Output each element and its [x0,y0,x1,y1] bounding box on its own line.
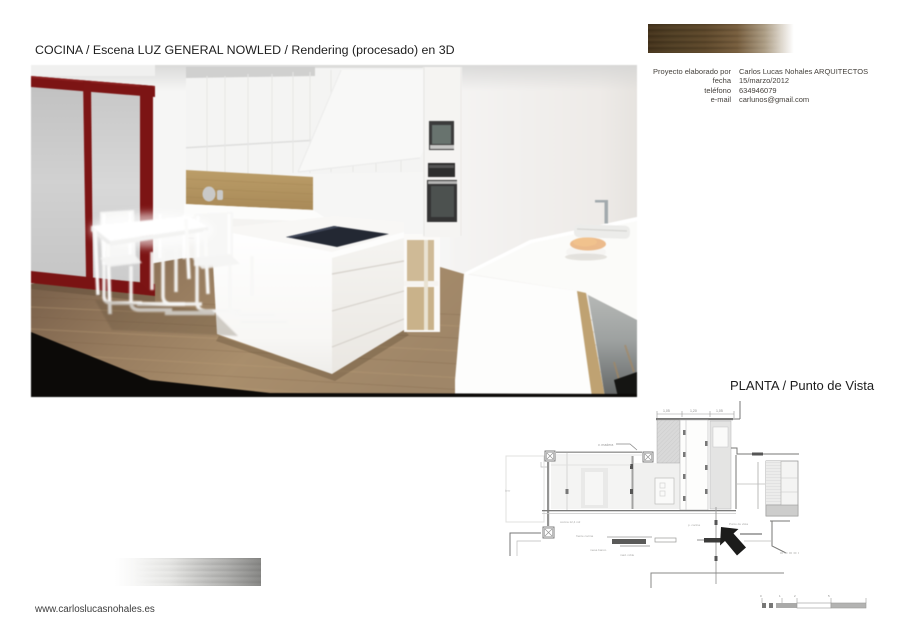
svg-text:frente cocina: frente cocina [576,534,594,538]
svg-text:p. cocina: p. cocina [688,523,700,527]
svg-text:mad. roble: mad. roble [620,553,635,557]
svg-text:1,05: 1,05 [663,409,670,413]
svg-text:Punto de vista: Punto de vista [729,522,748,526]
svg-text:terr: terr [505,489,511,493]
svg-text:cocina 12,4 m2: cocina 12,4 m2 [560,520,581,524]
svg-text:2: 2 [794,594,796,598]
svg-text:v. madera: v. madera [598,443,613,447]
svg-text:mesa banco: mesa banco [590,548,607,552]
svg-text:5: 5 [828,594,830,598]
svg-text:1,20: 1,20 [690,409,697,413]
svg-text:1: 1 [779,594,781,598]
svg-text:0: 0 [760,594,762,598]
svg-text:1,05: 1,05 [716,409,723,413]
